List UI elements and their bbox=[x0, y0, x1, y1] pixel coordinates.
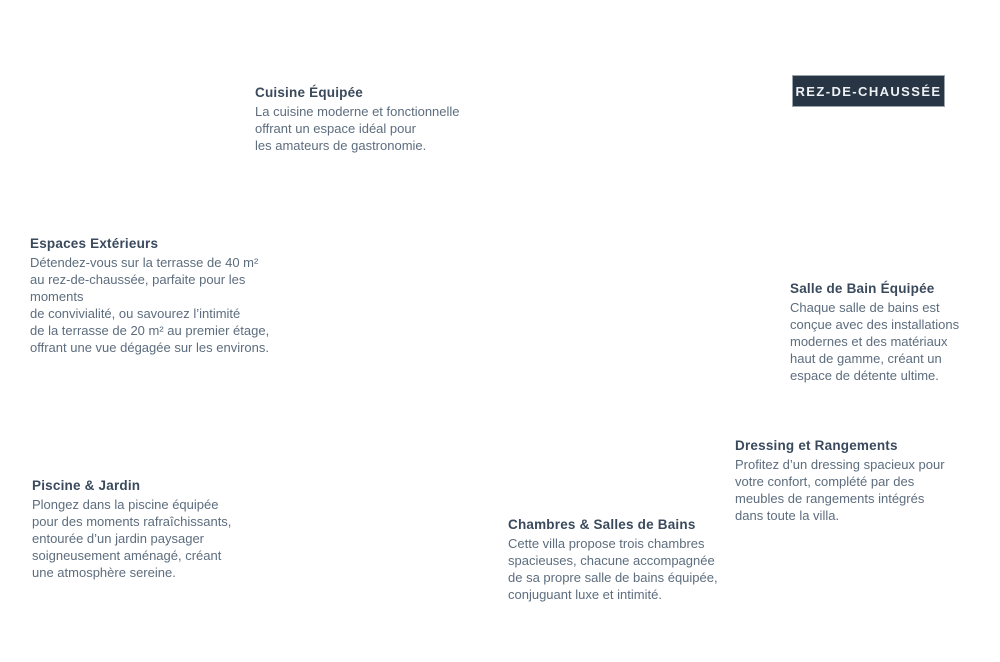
annotation-title: Dressing et Rangements bbox=[735, 438, 950, 453]
annotation-body: La cuisine moderne et fonctionnelle offr… bbox=[255, 103, 475, 154]
floor-label-badge: REZ-DE-CHAUSSÉE bbox=[792, 75, 945, 107]
annotation-title: Cuisine Équipée bbox=[255, 85, 475, 100]
annotation-body: Plongez dans la piscine équipée pour des… bbox=[32, 496, 252, 581]
annotation-cuisine: Cuisine Équipée La cuisine moderne et fo… bbox=[255, 85, 475, 154]
annotation-dressing: Dressing et Rangements Profitez d’un dre… bbox=[735, 438, 950, 524]
floor-label: REZ-DE-CHAUSSÉE bbox=[796, 84, 942, 99]
annotation-chambres: Chambres & Salles de Bains Cette villa p… bbox=[508, 517, 748, 603]
annotation-piscine: Piscine & Jardin Plongez dans la piscine… bbox=[32, 478, 252, 581]
annotation-espaces: Espaces Extérieurs Détendez-vous sur la … bbox=[30, 236, 300, 356]
annotation-title: Piscine & Jardin bbox=[32, 478, 252, 493]
annotation-salle-de-bain: Salle de Bain Équipée Chaque salle de ba… bbox=[790, 281, 985, 384]
annotation-title: Salle de Bain Équipée bbox=[790, 281, 985, 296]
annotation-title: Chambres & Salles de Bains bbox=[508, 517, 748, 532]
page: REZ-DE-CHAUSSÉE Cuisine Équipée La cuisi… bbox=[0, 0, 1000, 662]
annotation-body: Détendez-vous sur la terrasse de 40 m² a… bbox=[30, 254, 300, 356]
annotation-title: Espaces Extérieurs bbox=[30, 236, 300, 251]
annotation-body: Chaque salle de bains est conçue avec de… bbox=[790, 299, 985, 384]
annotation-body: Cette villa propose trois chambres spaci… bbox=[508, 535, 748, 603]
annotation-body: Profitez d’un dressing spacieux pour vot… bbox=[735, 456, 950, 524]
